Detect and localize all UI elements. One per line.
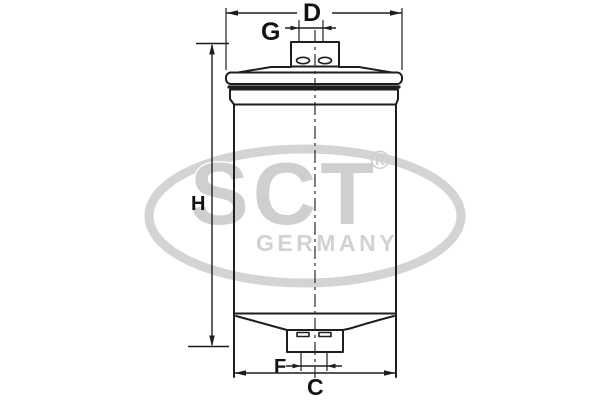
dimension-h-arrow-top bbox=[209, 44, 215, 55]
dimension-d-arrow-right bbox=[390, 10, 402, 16]
dimension-f-extension-lines bbox=[301, 352, 327, 371]
watermark-country-text: GERMANY bbox=[256, 230, 398, 256]
bottom-port-right-slot bbox=[319, 333, 331, 337]
dimension-d-arrow-left bbox=[227, 10, 239, 16]
dimension-f-arrow-left bbox=[293, 364, 302, 369]
dimension-f-arrow-right bbox=[327, 364, 336, 369]
top-port-left-hole bbox=[297, 57, 310, 63]
watermark-brand-text: SCT bbox=[190, 144, 378, 243]
dimension-d: D bbox=[226, 0, 402, 70]
dim-label-d: D bbox=[303, 0, 321, 27]
dimension-c: C bbox=[234, 370, 396, 400]
neck-band bbox=[230, 90, 398, 105]
registered-trademark-icon: ® bbox=[370, 145, 389, 175]
top-port-right-hole bbox=[319, 57, 332, 63]
dimension-h-arrow-bottom bbox=[209, 336, 215, 347]
bottom-port-left-slot bbox=[297, 333, 309, 337]
dim-label-f: F bbox=[274, 356, 286, 378]
dim-label-h: H bbox=[191, 193, 205, 215]
technical-drawing-page: SCT ® GERMANY bbox=[0, 0, 600, 400]
dimension-g-arrow-right bbox=[323, 26, 332, 31]
dim-label-c: C bbox=[307, 374, 324, 400]
dimension-c-arrow-left bbox=[235, 370, 247, 376]
top-cap bbox=[226, 73, 402, 85]
dim-label-g: G bbox=[261, 18, 280, 46]
fuel-filter-diagram: SCT ® GERMANY bbox=[0, 0, 600, 400]
dimension-g-arrow-left bbox=[291, 26, 300, 31]
dimension-c-arrow-right bbox=[384, 370, 396, 376]
